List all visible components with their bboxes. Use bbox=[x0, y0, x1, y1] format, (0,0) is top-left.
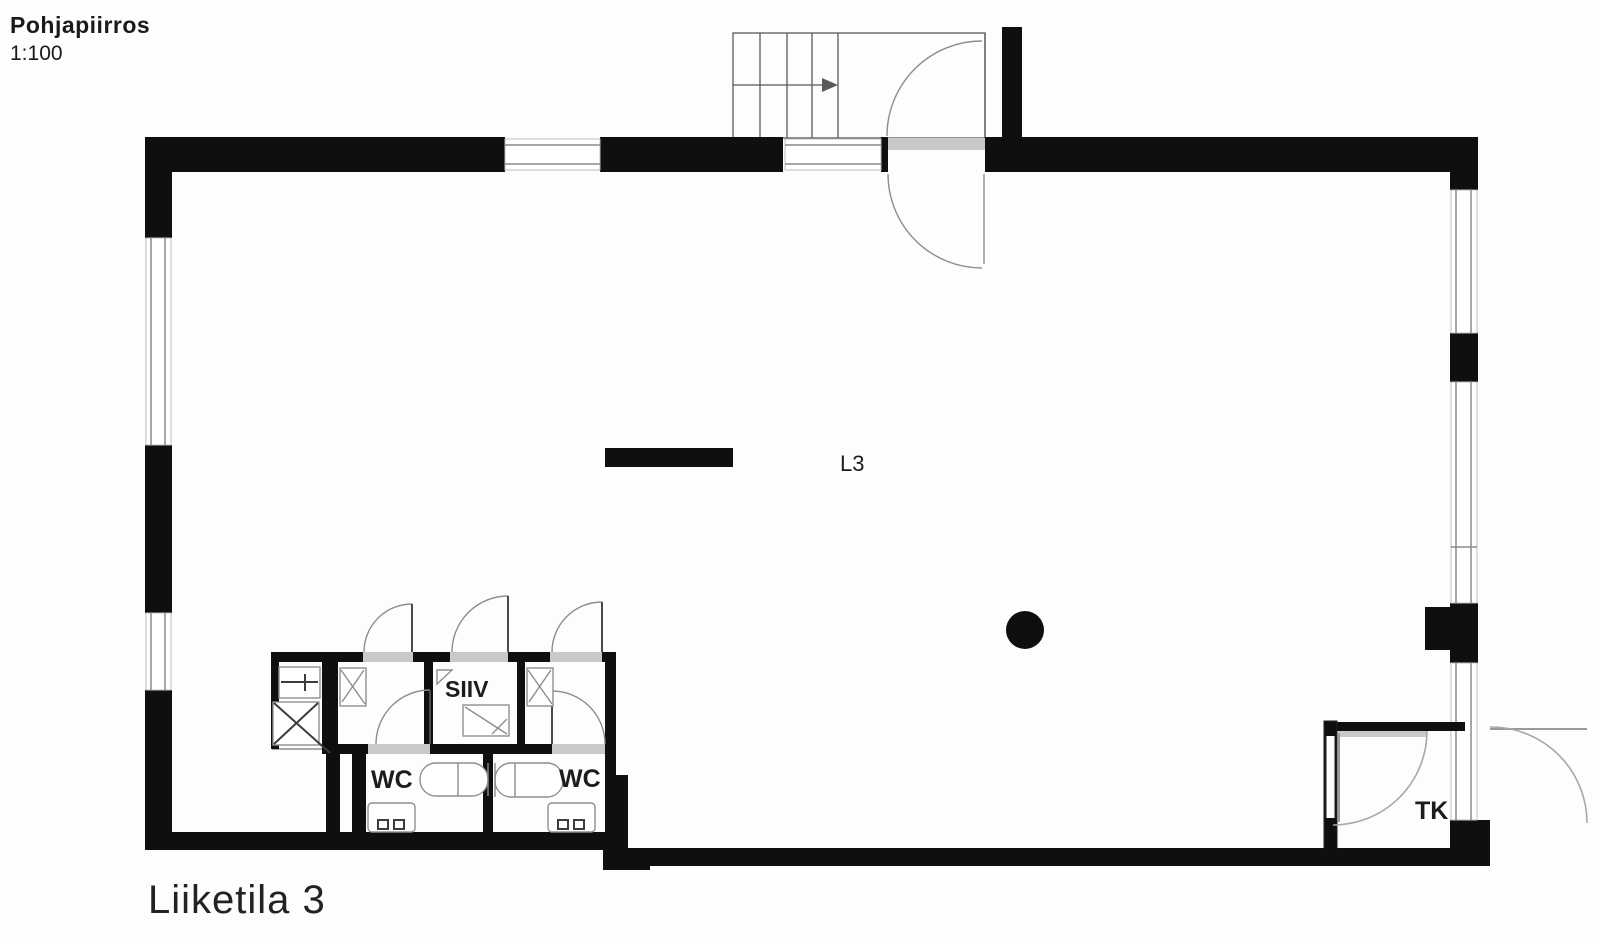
exterior-stair bbox=[733, 33, 985, 138]
tk-door-arc bbox=[1333, 731, 1427, 825]
wc-block-wall bbox=[517, 652, 525, 744]
window bbox=[146, 238, 171, 445]
window bbox=[785, 139, 881, 170]
wc-block-wall bbox=[508, 652, 550, 662]
tk-door-opening bbox=[1338, 731, 1427, 737]
sink bbox=[368, 803, 415, 832]
door-opening bbox=[450, 652, 508, 662]
toilet bbox=[420, 763, 488, 796]
wall-top bbox=[145, 137, 505, 172]
room-label-main: L3 bbox=[840, 451, 864, 476]
door-arc bbox=[552, 691, 605, 744]
interior-wall-stub bbox=[605, 448, 733, 467]
entrance-wall-stub bbox=[1002, 27, 1022, 147]
exterior-door-arc bbox=[1490, 727, 1587, 823]
tk-wall-top bbox=[1325, 722, 1465, 731]
entrance-threshold bbox=[888, 138, 985, 150]
wc-block-wall bbox=[605, 652, 616, 782]
stair-arrow-icon bbox=[822, 78, 838, 92]
wall-right bbox=[1450, 333, 1478, 382]
window bbox=[1451, 663, 1477, 820]
room-label-vestibule: TK bbox=[1415, 797, 1448, 825]
wall-top bbox=[985, 137, 1478, 172]
entrance-door bbox=[887, 33, 985, 268]
door-opening bbox=[363, 652, 413, 662]
window bbox=[505, 139, 600, 170]
wall-bottom-left bbox=[145, 832, 616, 850]
entrance-inner-door-arc bbox=[888, 174, 982, 268]
wall-right bbox=[1450, 172, 1478, 190]
door-opening bbox=[552, 744, 605, 754]
windows bbox=[146, 139, 1477, 820]
door-arc bbox=[376, 690, 430, 744]
door-arc bbox=[452, 596, 508, 652]
window bbox=[1451, 190, 1477, 333]
door-arc bbox=[552, 602, 602, 652]
room-label-wc1: WC bbox=[371, 766, 413, 794]
wc-block-wall bbox=[424, 652, 433, 744]
tk-wall-left-cap bbox=[1325, 818, 1336, 850]
wc-block-wall bbox=[322, 652, 338, 754]
wc-block-wall bbox=[326, 744, 340, 836]
wc-block-wall bbox=[605, 775, 628, 852]
floorplan-page: Pohjapiirros 1:100 bbox=[0, 0, 1600, 944]
wall-left bbox=[145, 137, 172, 238]
wall-left bbox=[145, 445, 172, 613]
room-label-cleaning: SIIV bbox=[445, 676, 489, 702]
entrance-outer-door-arc bbox=[887, 41, 982, 136]
wc-block-wall bbox=[352, 744, 366, 836]
door-arc bbox=[364, 604, 412, 652]
wall-bottom-right bbox=[603, 848, 1490, 866]
door-opening bbox=[368, 744, 430, 754]
wall-pier bbox=[881, 137, 888, 172]
wc-block-doors-to-hall bbox=[364, 596, 602, 652]
wc-block-wall bbox=[272, 652, 363, 662]
sink bbox=[548, 803, 595, 832]
wall-top bbox=[600, 137, 783, 172]
window bbox=[146, 613, 171, 690]
drawing-caption: Liiketila 3 bbox=[148, 878, 326, 923]
window bbox=[1451, 382, 1477, 603]
tk-wall-left-cap bbox=[1325, 722, 1336, 736]
floor-plan-canvas: L3 SIIV WC WC TK bbox=[0, 0, 1600, 944]
wall-column-block bbox=[1425, 607, 1458, 650]
wc-block-wall bbox=[430, 744, 552, 754]
door-opening bbox=[550, 652, 602, 662]
room-label-wc2: WC bbox=[559, 765, 601, 793]
wall-left bbox=[145, 690, 172, 850]
wc-block bbox=[271, 596, 628, 852]
toilet bbox=[495, 763, 563, 797]
structural-column bbox=[1006, 611, 1044, 649]
